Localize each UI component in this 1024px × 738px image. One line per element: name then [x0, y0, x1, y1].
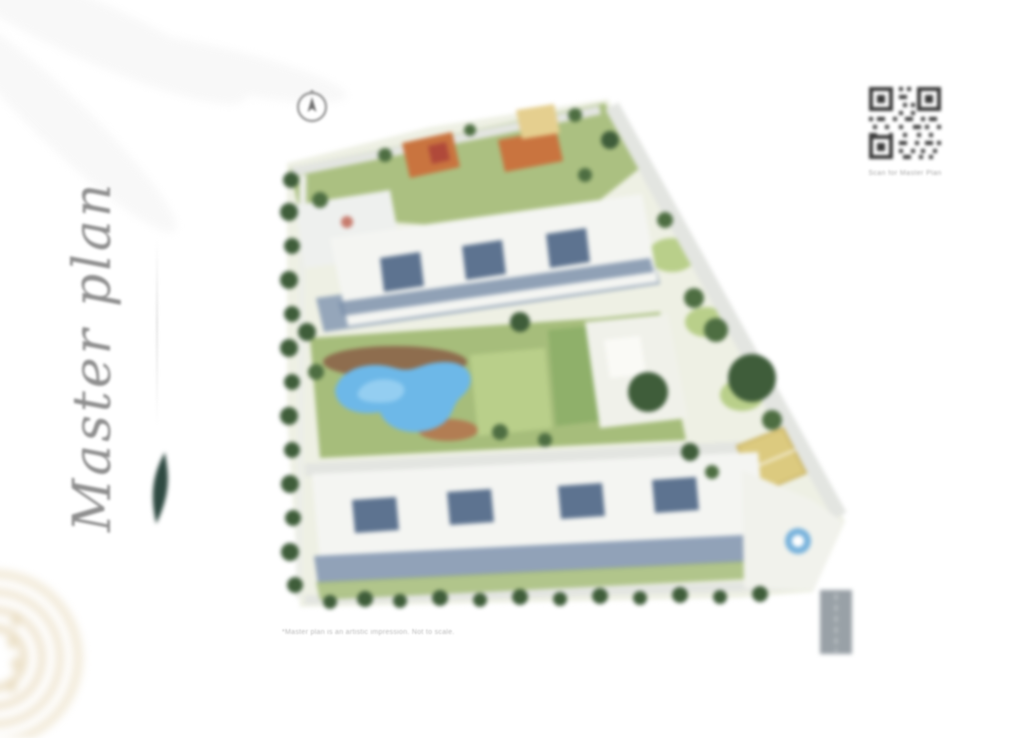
leaf-icon [144, 450, 176, 526]
map-footnote: *Master plan is an artistic impression. … [282, 629, 455, 636]
south-apartment-blocks [312, 452, 770, 600]
arc-decoration [0, 558, 116, 738]
title-divider-line [156, 238, 158, 426]
qr-code [866, 84, 944, 162]
north-compass-icon [292, 86, 332, 126]
master-plan-map [263, 90, 863, 662]
qr-caption: Scan for Master Plan [842, 170, 968, 177]
masterplan-brochure-page: { "page": { "title": "Master plan", "foo… [0, 0, 1024, 725]
page-title: Master plan [62, 181, 124, 532]
